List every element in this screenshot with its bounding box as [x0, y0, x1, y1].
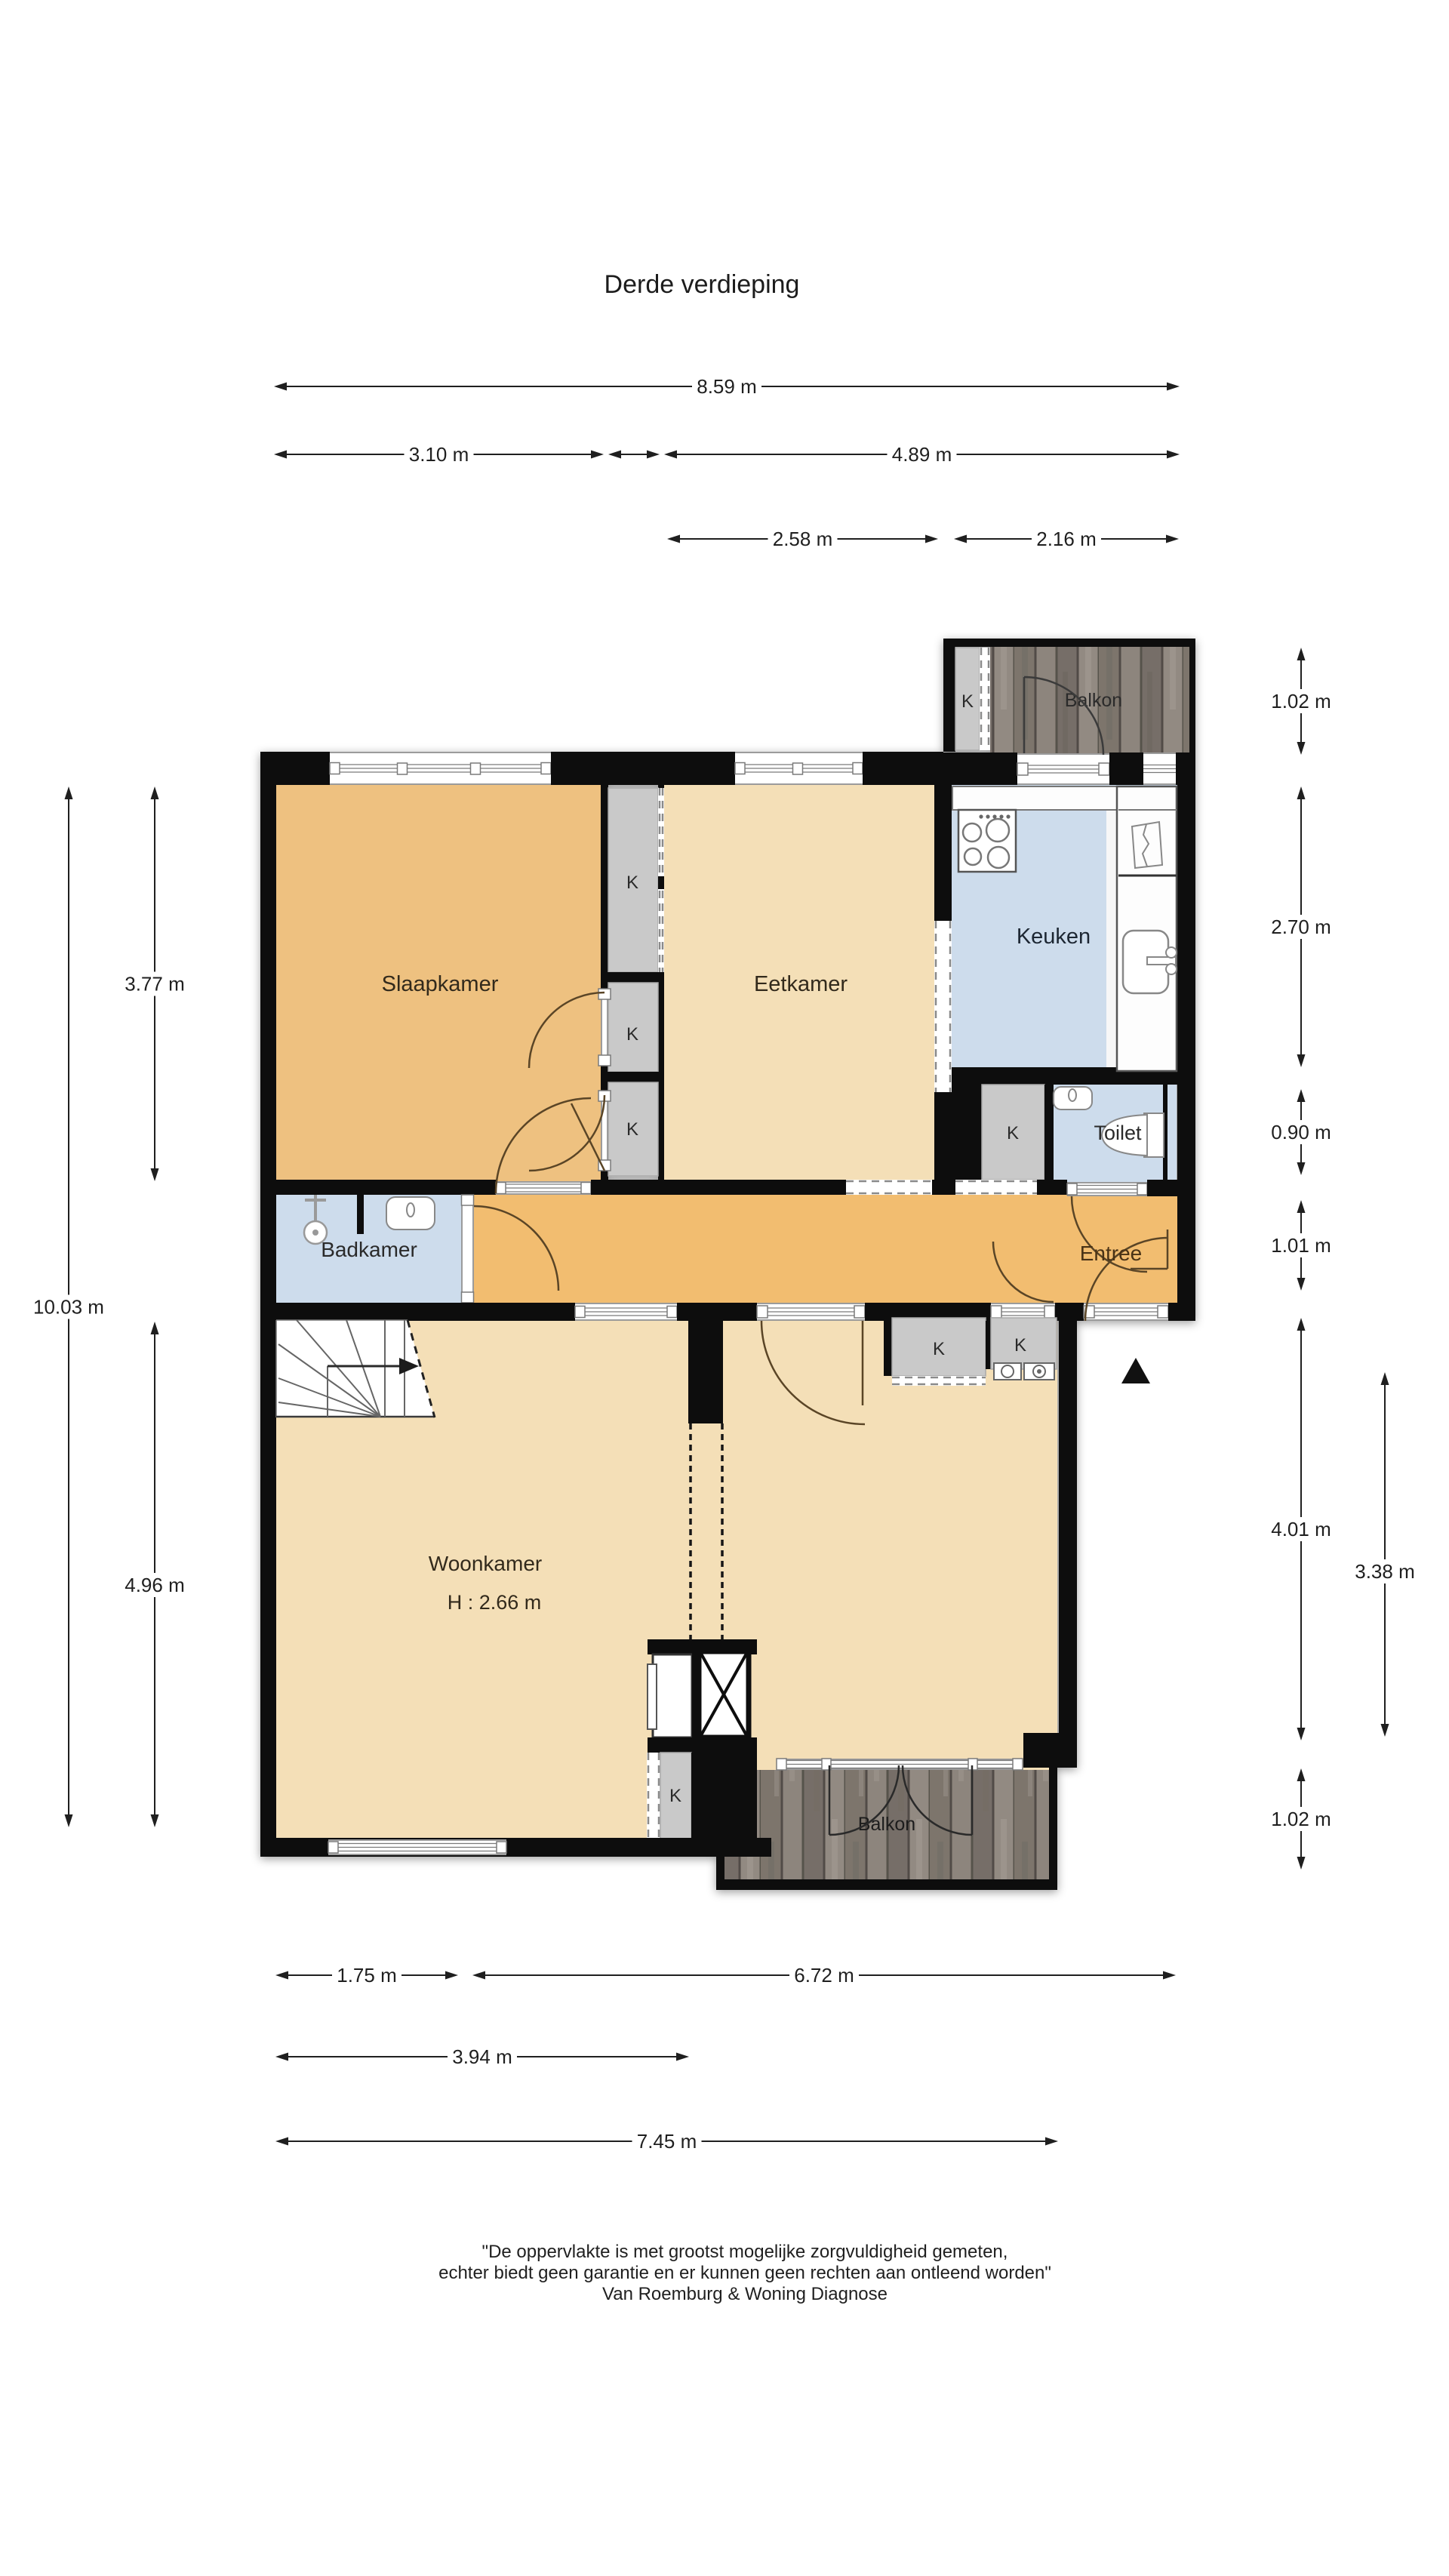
svg-text:K: K: [669, 1786, 681, 1806]
svg-text:echter biedt geen garantie en: echter biedt geen garantie en er kunnen …: [438, 2263, 1051, 2283]
svg-text:Toilet: Toilet: [1094, 1122, 1142, 1144]
svg-text:3.94 m: 3.94 m: [452, 2045, 512, 2068]
svg-text:2.58 m: 2.58 m: [773, 528, 833, 550]
svg-text:K: K: [626, 873, 638, 893]
svg-text:1.02 m: 1.02 m: [1271, 1808, 1331, 1830]
svg-text:3.38 m: 3.38 m: [1355, 1560, 1415, 1583]
svg-text:Van Roemburg & Woning Diagnose: Van Roemburg & Woning Diagnose: [602, 2284, 888, 2304]
svg-text:K: K: [961, 691, 974, 712]
svg-text:Keuken: Keuken: [1017, 925, 1091, 949]
svg-text:K: K: [626, 1024, 638, 1045]
svg-text:Woonkamer: Woonkamer: [429, 1552, 542, 1575]
svg-text:4.96 m: 4.96 m: [125, 1574, 185, 1596]
svg-text:8.59 m: 8.59 m: [697, 375, 757, 398]
svg-text:3.77 m: 3.77 m: [125, 973, 185, 996]
svg-text:6.72 m: 6.72 m: [794, 1964, 854, 1987]
svg-text:4.01 m: 4.01 m: [1271, 1518, 1331, 1540]
svg-text:1.75 m: 1.75 m: [337, 1964, 397, 1987]
svg-text:Eetkamer: Eetkamer: [754, 972, 848, 996]
svg-text:K: K: [1007, 1123, 1019, 1143]
svg-text:4.89 m: 4.89 m: [892, 443, 952, 466]
svg-text:Slaapkamer: Slaapkamer: [382, 972, 499, 996]
svg-text:Badkamer: Badkamer: [321, 1238, 417, 1261]
svg-text:K: K: [626, 1119, 638, 1140]
svg-text:10.03 m: 10.03 m: [33, 1296, 104, 1319]
svg-text:1.02 m: 1.02 m: [1271, 690, 1331, 712]
svg-text:K: K: [933, 1339, 945, 1359]
svg-text:7.45 m: 7.45 m: [637, 2130, 697, 2153]
svg-text:Derde verdieping: Derde verdieping: [605, 270, 800, 299]
svg-text:K: K: [1014, 1335, 1026, 1356]
svg-text:3.10 m: 3.10 m: [409, 443, 469, 466]
svg-text:H : 2.66 m: H : 2.66 m: [448, 1591, 542, 1614]
svg-text:"De oppervlakte is met grootst: "De oppervlakte is met grootst mogelijke…: [482, 2242, 1008, 2262]
svg-text:2.16 m: 2.16 m: [1036, 528, 1097, 550]
svg-text:0.90 m: 0.90 m: [1271, 1121, 1331, 1143]
svg-text:Entree: Entree: [1080, 1242, 1143, 1265]
svg-text:1.01 m: 1.01 m: [1271, 1234, 1331, 1257]
svg-text:2.70 m: 2.70 m: [1271, 916, 1331, 938]
